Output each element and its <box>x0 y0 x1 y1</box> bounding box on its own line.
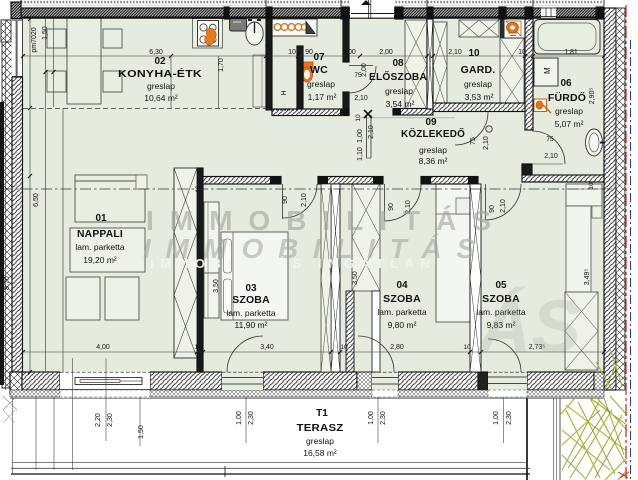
svg-text:19,20 m²: 19,20 m² <box>83 255 117 265</box>
svg-text:TERASZ: TERASZ <box>297 422 344 434</box>
svg-text:3,53 m²: 3,53 m² <box>465 92 494 102</box>
svg-text:2,00: 2,00 <box>361 63 368 77</box>
svg-text:2,10: 2,10 <box>544 153 558 160</box>
svg-text:10: 10 <box>355 114 362 122</box>
svg-text:pm7020: pm7020 <box>31 27 38 52</box>
svg-text:greslap: greslap <box>464 79 492 89</box>
svg-text:greslap: greslap <box>385 86 413 96</box>
svg-text:04: 04 <box>396 280 408 291</box>
svg-text:01: 01 <box>95 213 107 224</box>
svg-text:6,50: 6,50 <box>33 193 40 207</box>
svg-text:10: 10 <box>518 49 526 56</box>
svg-text:9,80 m²: 9,80 m² <box>388 320 417 330</box>
svg-text:3,40: 3,40 <box>260 344 274 351</box>
svg-text:greslap: greslap <box>555 106 583 116</box>
svg-text:greslap: greslap <box>419 145 447 155</box>
svg-text:2,00: 2,00 <box>379 49 393 56</box>
svg-text:75: 75 <box>470 137 477 145</box>
svg-text:2,30: 2,30 <box>248 411 255 425</box>
svg-text:2,10: 2,10 <box>483 136 490 150</box>
svg-text:3,54 m²: 3,54 m² <box>386 99 415 109</box>
svg-text:16,58 m²: 16,58 m² <box>303 448 337 458</box>
svg-text:90: 90 <box>305 49 313 56</box>
svg-text:6,30: 6,30 <box>149 49 163 56</box>
svg-text:5,07 m²: 5,07 m² <box>555 119 584 129</box>
svg-text:4,00: 4,00 <box>96 344 110 351</box>
svg-text:greslap: greslap <box>147 81 175 91</box>
svg-text:10: 10 <box>194 344 202 351</box>
svg-text:M: M <box>543 67 552 74</box>
svg-text:10: 10 <box>468 48 480 59</box>
svg-text:10: 10 <box>195 185 202 193</box>
svg-text:11,90 m²: 11,90 m² <box>235 320 268 330</box>
svg-text:GARD.: GARD. <box>461 64 496 76</box>
svg-text:8,70: 8,70 <box>4 276 11 290</box>
svg-text:WC: WC <box>310 64 328 76</box>
svg-text:1,10: 1,10 <box>357 147 364 161</box>
svg-text:lam. parketta: lam. parketta <box>226 308 275 318</box>
svg-text:lam. parketta: lam. parketta <box>377 307 426 317</box>
svg-text:1,70: 1,70 <box>218 58 225 72</box>
svg-text:2,30: 2,30 <box>107 413 114 427</box>
svg-text:02: 02 <box>154 56 166 67</box>
svg-text:1,00: 1,00 <box>342 49 356 56</box>
svg-text:75: 75 <box>354 72 362 79</box>
svg-text:1,00: 1,00 <box>493 411 500 425</box>
svg-text:1,17 m²: 1,17 m² <box>308 92 337 102</box>
svg-text:2,20: 2,20 <box>95 413 102 427</box>
svg-text:2,10: 2,10 <box>368 125 375 139</box>
svg-text:SZOBA: SZOBA <box>232 294 270 306</box>
svg-text:3,50: 3,50 <box>213 279 220 293</box>
svg-text:KÖZLEKEDŐ: KÖZLEKEDŐ <box>401 127 465 140</box>
svg-text:03: 03 <box>245 283 257 294</box>
svg-text:1,50: 1,50 <box>138 425 145 439</box>
svg-text:lam. parketta: lam. parketta <box>75 242 124 252</box>
svg-text:ELŐSZOBA: ELŐSZOBA <box>369 70 427 83</box>
svg-text:H: H <box>281 90 288 95</box>
svg-text:90: 90 <box>282 196 289 204</box>
svg-text:ÁS: ÁS <box>476 285 581 368</box>
svg-text:10: 10 <box>463 344 471 351</box>
svg-text:1,00: 1,00 <box>236 411 243 425</box>
svg-text:08: 08 <box>392 58 404 69</box>
svg-text:8,36 m²: 8,36 m² <box>419 156 448 166</box>
svg-text:2,10: 2,10 <box>500 199 507 213</box>
svg-text:NAPPALI: NAPPALI <box>77 228 123 240</box>
svg-text:1,00: 1,00 <box>368 411 375 425</box>
svg-text:greslap: greslap <box>306 436 334 446</box>
svg-text:75: 75 <box>546 136 554 143</box>
svg-text:2,90⁵: 2,90⁵ <box>589 88 596 105</box>
svg-text:10: 10 <box>340 344 348 351</box>
svg-text:3,50: 3,50 <box>352 271 359 285</box>
svg-text:SZOBA: SZOBA <box>383 293 421 305</box>
svg-text:1,81: 1,81 <box>564 49 578 56</box>
svg-text:IMMOBILITÁS INGATLAN: IMMOBILITÁS INGATLAN <box>150 256 435 271</box>
svg-text:greslap: greslap <box>307 79 335 89</box>
svg-text:07: 07 <box>313 52 325 63</box>
svg-text:2,30: 2,30 <box>506 411 513 425</box>
svg-text:2,30: 2,30 <box>380 411 387 425</box>
svg-text:FÜRDŐ: FÜRDŐ <box>548 91 586 104</box>
svg-text:1,50: 1,50 <box>42 26 49 40</box>
svg-text:2,80: 2,80 <box>390 344 404 351</box>
svg-text:10: 10 <box>288 49 296 56</box>
svg-text:1,00: 1,00 <box>357 129 364 143</box>
svg-text:3,49⁵: 3,49⁵ <box>584 269 591 286</box>
svg-text:10,64 m²: 10,64 m² <box>144 93 178 103</box>
svg-text:09: 09 <box>425 117 437 128</box>
svg-text:2,10: 2,10 <box>448 49 462 56</box>
svg-text:2,10: 2,10 <box>354 95 368 102</box>
svg-text:KONYHA-ÉTK: KONYHA-ÉTK <box>118 67 202 80</box>
svg-text:06: 06 <box>560 78 572 89</box>
svg-text:10: 10 <box>588 182 595 190</box>
svg-text:T1: T1 <box>316 408 328 419</box>
